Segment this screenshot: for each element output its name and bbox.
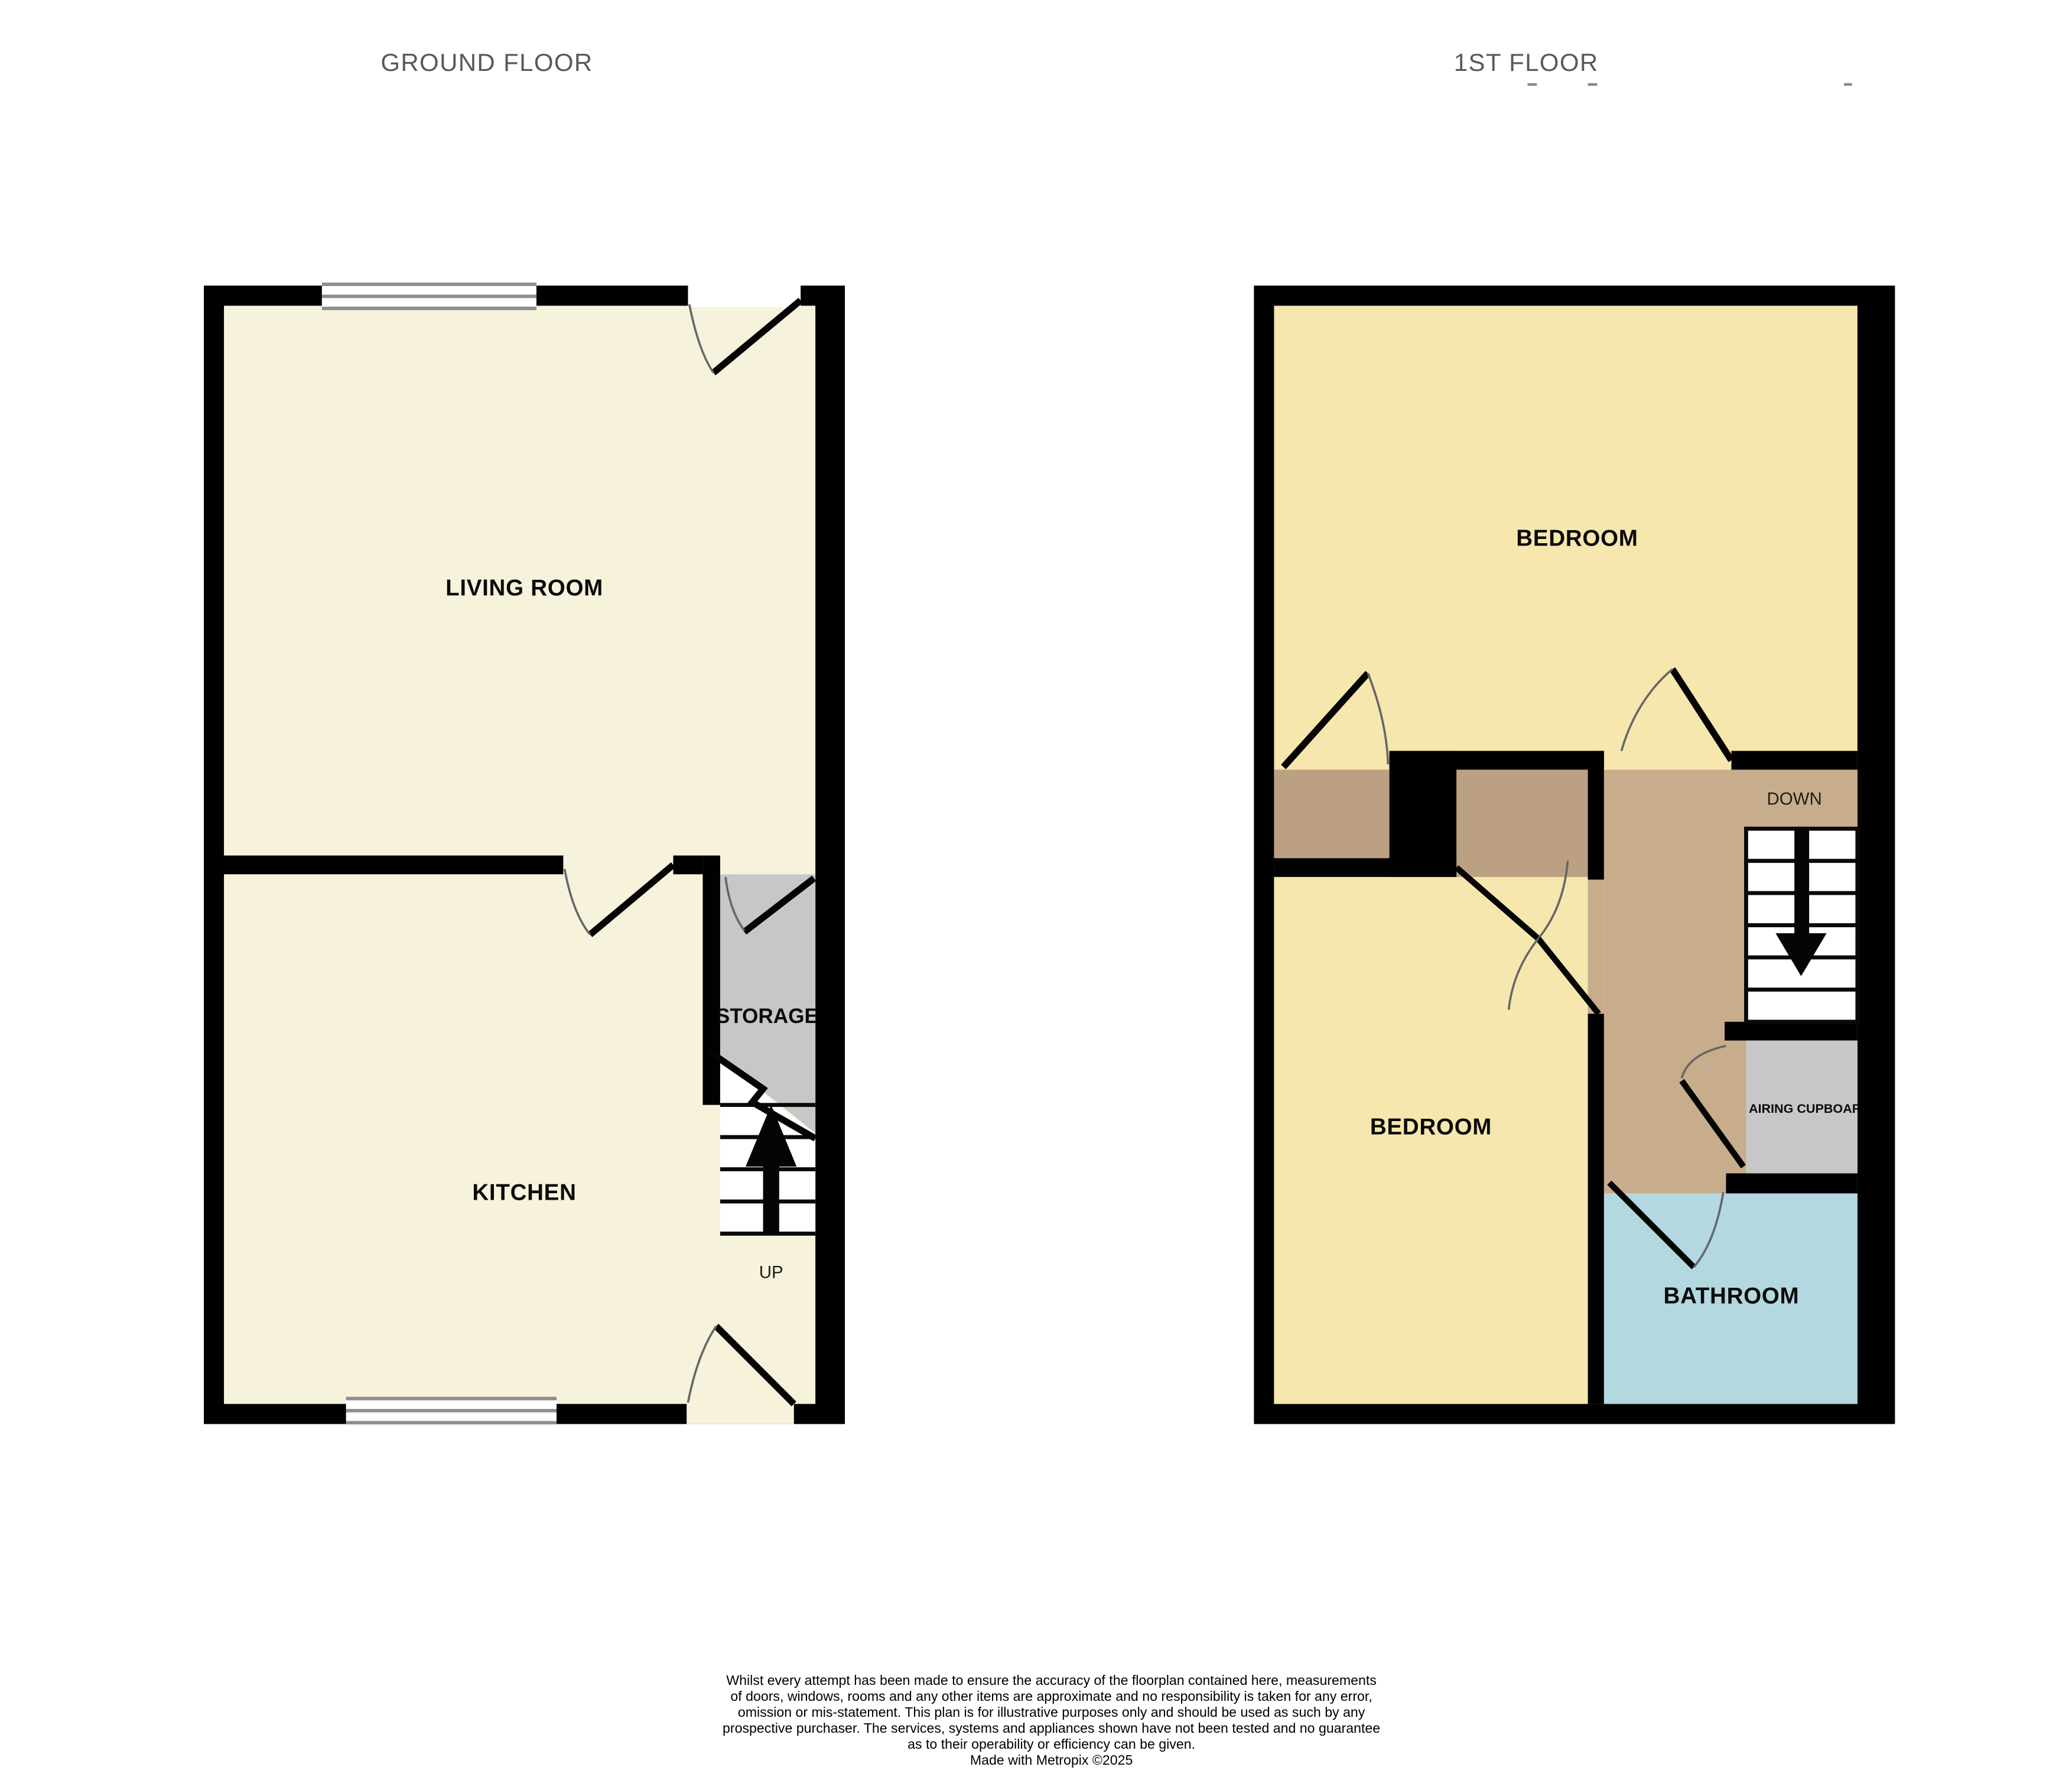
- living-kitchen-divider-wall: [204, 856, 563, 875]
- ground-interior: [224, 306, 815, 1404]
- floorplan-page: GROUND FLOOR: [0, 0, 2072, 1770]
- bedroom-front-label: BEDROOM: [1516, 525, 1638, 551]
- first-floor-plan: 1ST FLOOR: [1254, 48, 1895, 1424]
- bathroom-doorway-gap: [1604, 1173, 1726, 1193]
- kitchen-storage-wall: [702, 856, 720, 1105]
- ground-floor-plan: GROUND FLOOR: [204, 48, 845, 1424]
- bedroom-doorway-gap: [1588, 879, 1604, 1014]
- divider-door-jamb: [673, 856, 702, 875]
- living-room-window: [322, 283, 536, 310]
- artifact-dash: [1844, 83, 1852, 86]
- first-floor-title: 1ST FLOOR: [1454, 48, 1599, 76]
- bedroom-back-label: BEDROOM: [1370, 1115, 1492, 1140]
- disclaimer-line: as to their operability or efficiency ca…: [907, 1736, 1195, 1752]
- title-artifact-dashes: [1527, 83, 1852, 86]
- floorplan-svg: GROUND FLOOR: [0, 0, 2072, 1770]
- stairs-down: [1746, 829, 1857, 1022]
- disclaimer-line: omission or mis-statement. This plan is …: [738, 1704, 1365, 1720]
- hallway-left-wall-lower: [1588, 1014, 1604, 1404]
- bedroom-back: [1274, 877, 1588, 1404]
- disclaimer-line: Whilst every attempt has been made to en…: [726, 1672, 1377, 1688]
- artifact-dash: [1588, 83, 1598, 86]
- artifact-dash: [1527, 83, 1537, 86]
- airing-cupboard-label: AIRING CUPBOARD: [1749, 1101, 1871, 1116]
- threshold-front-bedroom: [1274, 769, 1389, 858]
- metropix-credit: Made with Metropix ©2025: [970, 1752, 1133, 1768]
- living-room-label: LIVING ROOM: [445, 575, 603, 600]
- door-opening: [687, 1400, 794, 1424]
- door-opening: [688, 283, 801, 307]
- kitchen-window: [346, 1397, 557, 1424]
- hallway-left-wall-upper: [1588, 751, 1604, 880]
- down-label: DOWN: [1767, 789, 1821, 808]
- bedroom-front-wall-right: [1731, 751, 1857, 770]
- disclaimer: Whilst every attempt has been made to en…: [723, 1672, 1380, 1768]
- storage-label: STORAGE: [716, 1005, 818, 1028]
- up-label: UP: [759, 1262, 783, 1282]
- stairs-bottom-wall: [1725, 1022, 1858, 1041]
- bathroom-label: BATHROOM: [1664, 1283, 1800, 1308]
- disclaimer-line: of doors, windows, rooms and any other i…: [730, 1688, 1372, 1704]
- bathroom-top-wall: [1726, 1173, 1857, 1193]
- down-arrow-shaft: [1794, 829, 1809, 938]
- threshold-junction-wall: [1390, 751, 1456, 877]
- disclaimer-line: prospective purchaser. The services, sys…: [723, 1720, 1380, 1736]
- kitchen-label: KITCHEN: [472, 1180, 576, 1206]
- ground-floor-title: GROUND FLOOR: [380, 48, 593, 76]
